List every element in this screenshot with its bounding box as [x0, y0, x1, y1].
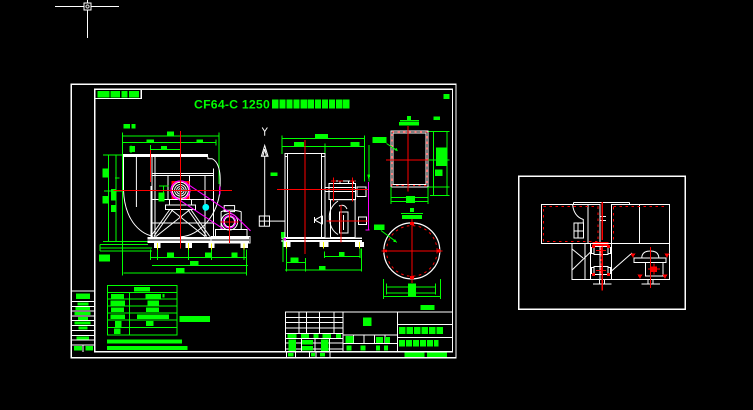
svg-text:CF64-C 1250: CF64-C 1250: [194, 97, 270, 111]
